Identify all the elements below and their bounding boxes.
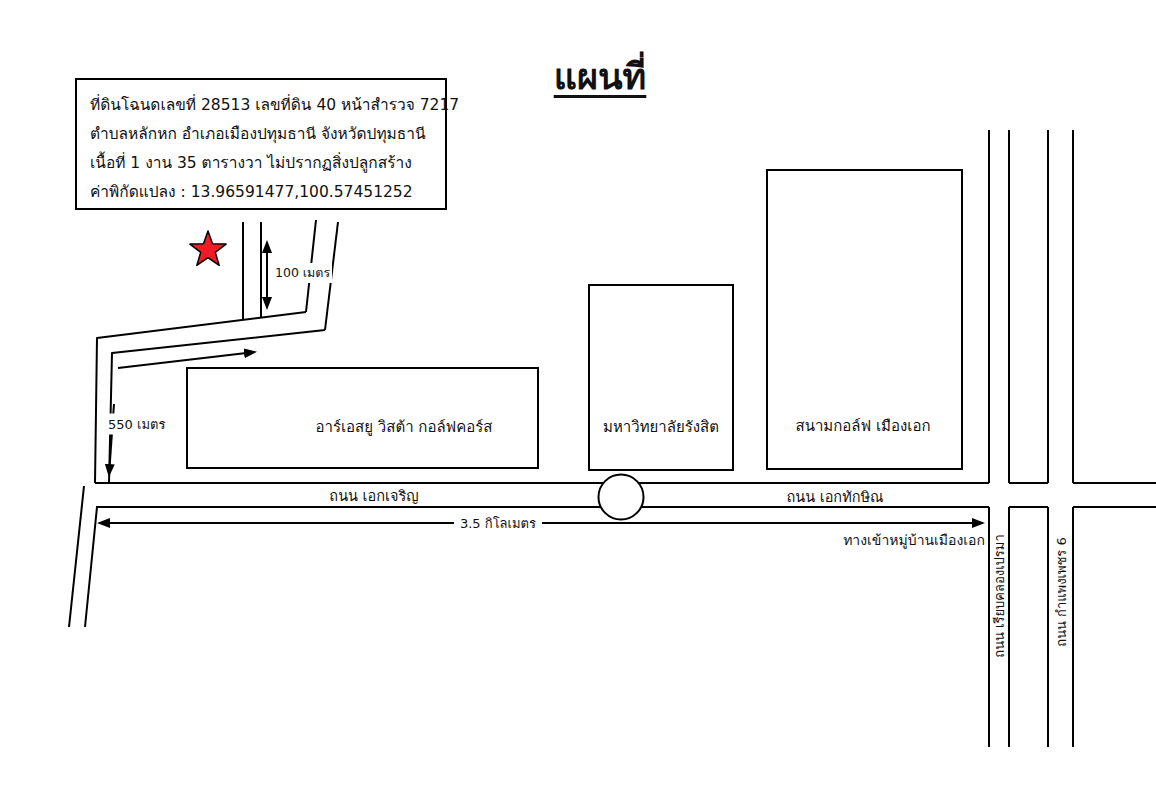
deed-info-line-4: ค่าพิกัดแปลง : 13.96591477,100.57451252 — [90, 178, 432, 207]
golf-course-west-label: อาร์เอสยู วิสต้า กอล์ฟคอร์ส — [315, 415, 492, 439]
distance-100m-label: 100 เมตร — [273, 263, 332, 283]
deed-info-line-3: เนื้อที่ 1 งาน 35 ตารางวา ไม่ปรากฏสิ่งปล… — [90, 149, 432, 178]
deed-info-line-2: ตำบลหลักหก อำเภอเมืองปทุมธานี จังหวัดปทุ… — [90, 120, 432, 149]
deed-info-line-1: ที่ดินโฉนดเลขที่ 28513 เลขที่ดิน 40 หน้า… — [90, 91, 432, 120]
road-ek-charoen-label: ถนน เอกเจริญ — [329, 484, 418, 507]
road-ek-thaksin-label: ถนน เอกทักษิณ — [786, 485, 883, 508]
land-plot-map: แผนที่ ที่ดินโฉนดเลขที่ 28513 เลขที่ดิน … — [0, 0, 1156, 800]
golf-course-east-label: สนามกอล์ฟ เมืองเอก — [796, 414, 931, 438]
distance-3-5km-label: 3.5 กิโลเมตร — [454, 513, 542, 534]
location-star-icon — [190, 231, 226, 265]
village-entrance-label: ทางเข้าหมู่บ้านเมืองเอก — [843, 529, 985, 551]
university-box — [589, 285, 733, 470]
page-title: แผนที่ — [554, 48, 647, 105]
road-khlong-prema-label: ถนน เรียบคลองเปรมา — [989, 534, 1010, 657]
road-kamphaeng-phet-label: ถนน กำแพงเพชร 6 — [1051, 537, 1072, 646]
deed-info-box: ที่ดินโฉนดเลขที่ 28513 เลขที่ดิน 40 หน้า… — [75, 78, 447, 210]
university-label: มหาวิทยาลัยรังสิต — [603, 415, 719, 439]
distance-550m-label: 550 เมตร — [106, 414, 167, 435]
roundabout-circle — [599, 475, 644, 520]
arrow-route-direction — [118, 352, 255, 368]
